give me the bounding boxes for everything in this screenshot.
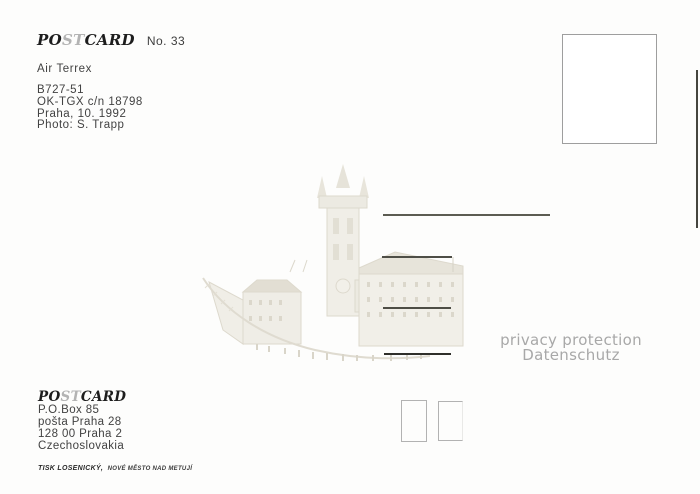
- prague-old-town-hall-watermark-icon: [195, 160, 477, 370]
- photo-details: B727-51 OK-TGX c/n 18798 Praha, 10. 1992…: [37, 85, 143, 132]
- logo-part-dark2: CARD: [85, 31, 135, 49]
- address-country: Czechoslovakia: [38, 441, 124, 453]
- address-line-2: [382, 256, 452, 258]
- printer-name: TISK LOSENICKÝ,: [38, 465, 103, 472]
- address-line-3: [383, 307, 451, 309]
- card-number: No. 33: [147, 34, 185, 48]
- postal-digit-box-1: [401, 400, 427, 442]
- address-line-1: [383, 214, 550, 216]
- postcard-back: POSTCARDNo. 33 Air Terrex B727-51 OK-TGX…: [0, 0, 700, 494]
- address-city: 128 00 Praha 2: [38, 429, 124, 441]
- stamp-box: [562, 34, 657, 144]
- logo-part-gray: ST: [61, 389, 81, 405]
- postal-digit-box-2: [438, 401, 463, 441]
- logo-part-dark: PO: [38, 389, 61, 405]
- privacy-watermark: privacy protection Datenschutz: [451, 333, 691, 363]
- publisher-address: P.O.Box 85 pošta Praha 28 128 00 Praha 2…: [38, 405, 124, 453]
- printer-credit: TISK LOSENICKÝ, NOVÉ MĚSTO NAD METUJÍ: [38, 457, 192, 475]
- detail-photographer: Photo: S. Trapp: [37, 120, 143, 132]
- printer-place: NOVÉ MĚSTO NAD METUJÍ: [108, 466, 193, 472]
- detail-registration: OK-TGX c/n 18798: [37, 97, 143, 109]
- logo-part-gray: ST: [62, 31, 85, 49]
- postcard-logo: POSTCARDNo. 33: [37, 31, 185, 49]
- card-edge-line: [696, 70, 698, 228]
- address-line-4: [384, 353, 451, 355]
- publisher-logo: POSTCARD: [38, 389, 126, 405]
- logo-part-dark2: CARD: [81, 389, 126, 405]
- logo-part-dark: PO: [37, 31, 62, 49]
- airline-name: Air Terrex: [37, 63, 92, 75]
- privacy-line-de: Datenschutz: [451, 348, 691, 363]
